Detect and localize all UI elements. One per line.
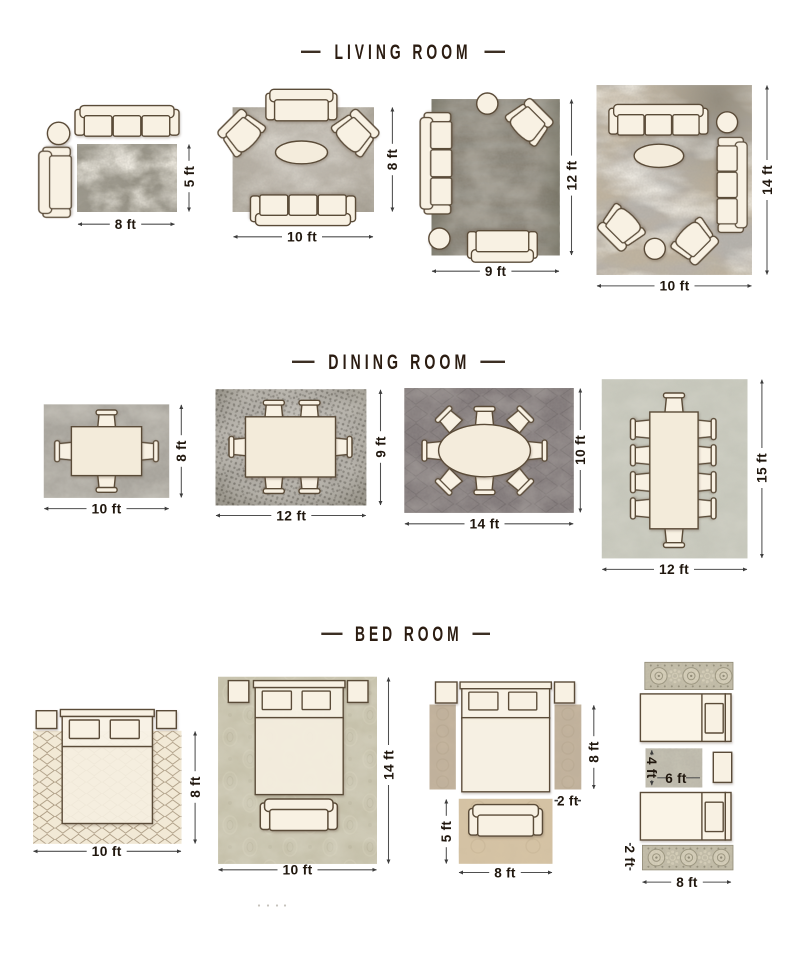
svg-text:4 ft: 4 ft [644, 757, 659, 779]
svg-text:10 ft: 10 ft [287, 230, 317, 245]
svg-text:10 ft: 10 ft [660, 279, 690, 294]
svg-text:9 ft: 9 ft [485, 264, 507, 279]
svg-text:8 ft: 8 ft [115, 217, 137, 232]
svg-text:5 ft: 5 ft [182, 166, 197, 188]
svg-text:DINING ROOM: DINING ROOM [328, 351, 470, 374]
svg-text:5 ft: 5 ft [439, 821, 454, 843]
svg-text:8 ft: 8 ft [174, 440, 189, 462]
svg-text:8 ft: 8 ft [385, 149, 400, 171]
svg-text:15 ft: 15 ft [755, 453, 770, 483]
svg-text:2 ft: 2 ft [557, 794, 579, 809]
svg-text:8 ft: 8 ft [587, 741, 602, 763]
svg-text:10 ft: 10 ft [283, 863, 313, 878]
svg-text:8 ft: 8 ft [494, 865, 516, 880]
svg-text:LIVING ROOM: LIVING ROOM [335, 41, 472, 64]
svg-text:2 ft: 2 ft [622, 846, 637, 868]
svg-text:12 ft: 12 ft [564, 160, 579, 190]
svg-text:8 ft: 8 ft [188, 776, 203, 798]
svg-text:14 ft: 14 ft [381, 750, 396, 780]
svg-text:10 ft: 10 ft [573, 435, 588, 465]
svg-text:BED ROOM: BED ROOM [355, 623, 463, 646]
svg-text:9 ft: 9 ft [373, 436, 388, 458]
svg-text:14 ft: 14 ft [470, 517, 500, 532]
svg-text:6 ft: 6 ft [665, 771, 687, 786]
svg-text:8 ft: 8 ft [676, 875, 698, 890]
svg-text:12 ft: 12 ft [276, 508, 306, 523]
svg-text:10 ft: 10 ft [92, 501, 122, 516]
svg-text:10 ft: 10 ft [92, 844, 122, 859]
svg-text:12 ft: 12 ft [659, 562, 689, 577]
svg-text:14 ft: 14 ft [760, 165, 775, 195]
